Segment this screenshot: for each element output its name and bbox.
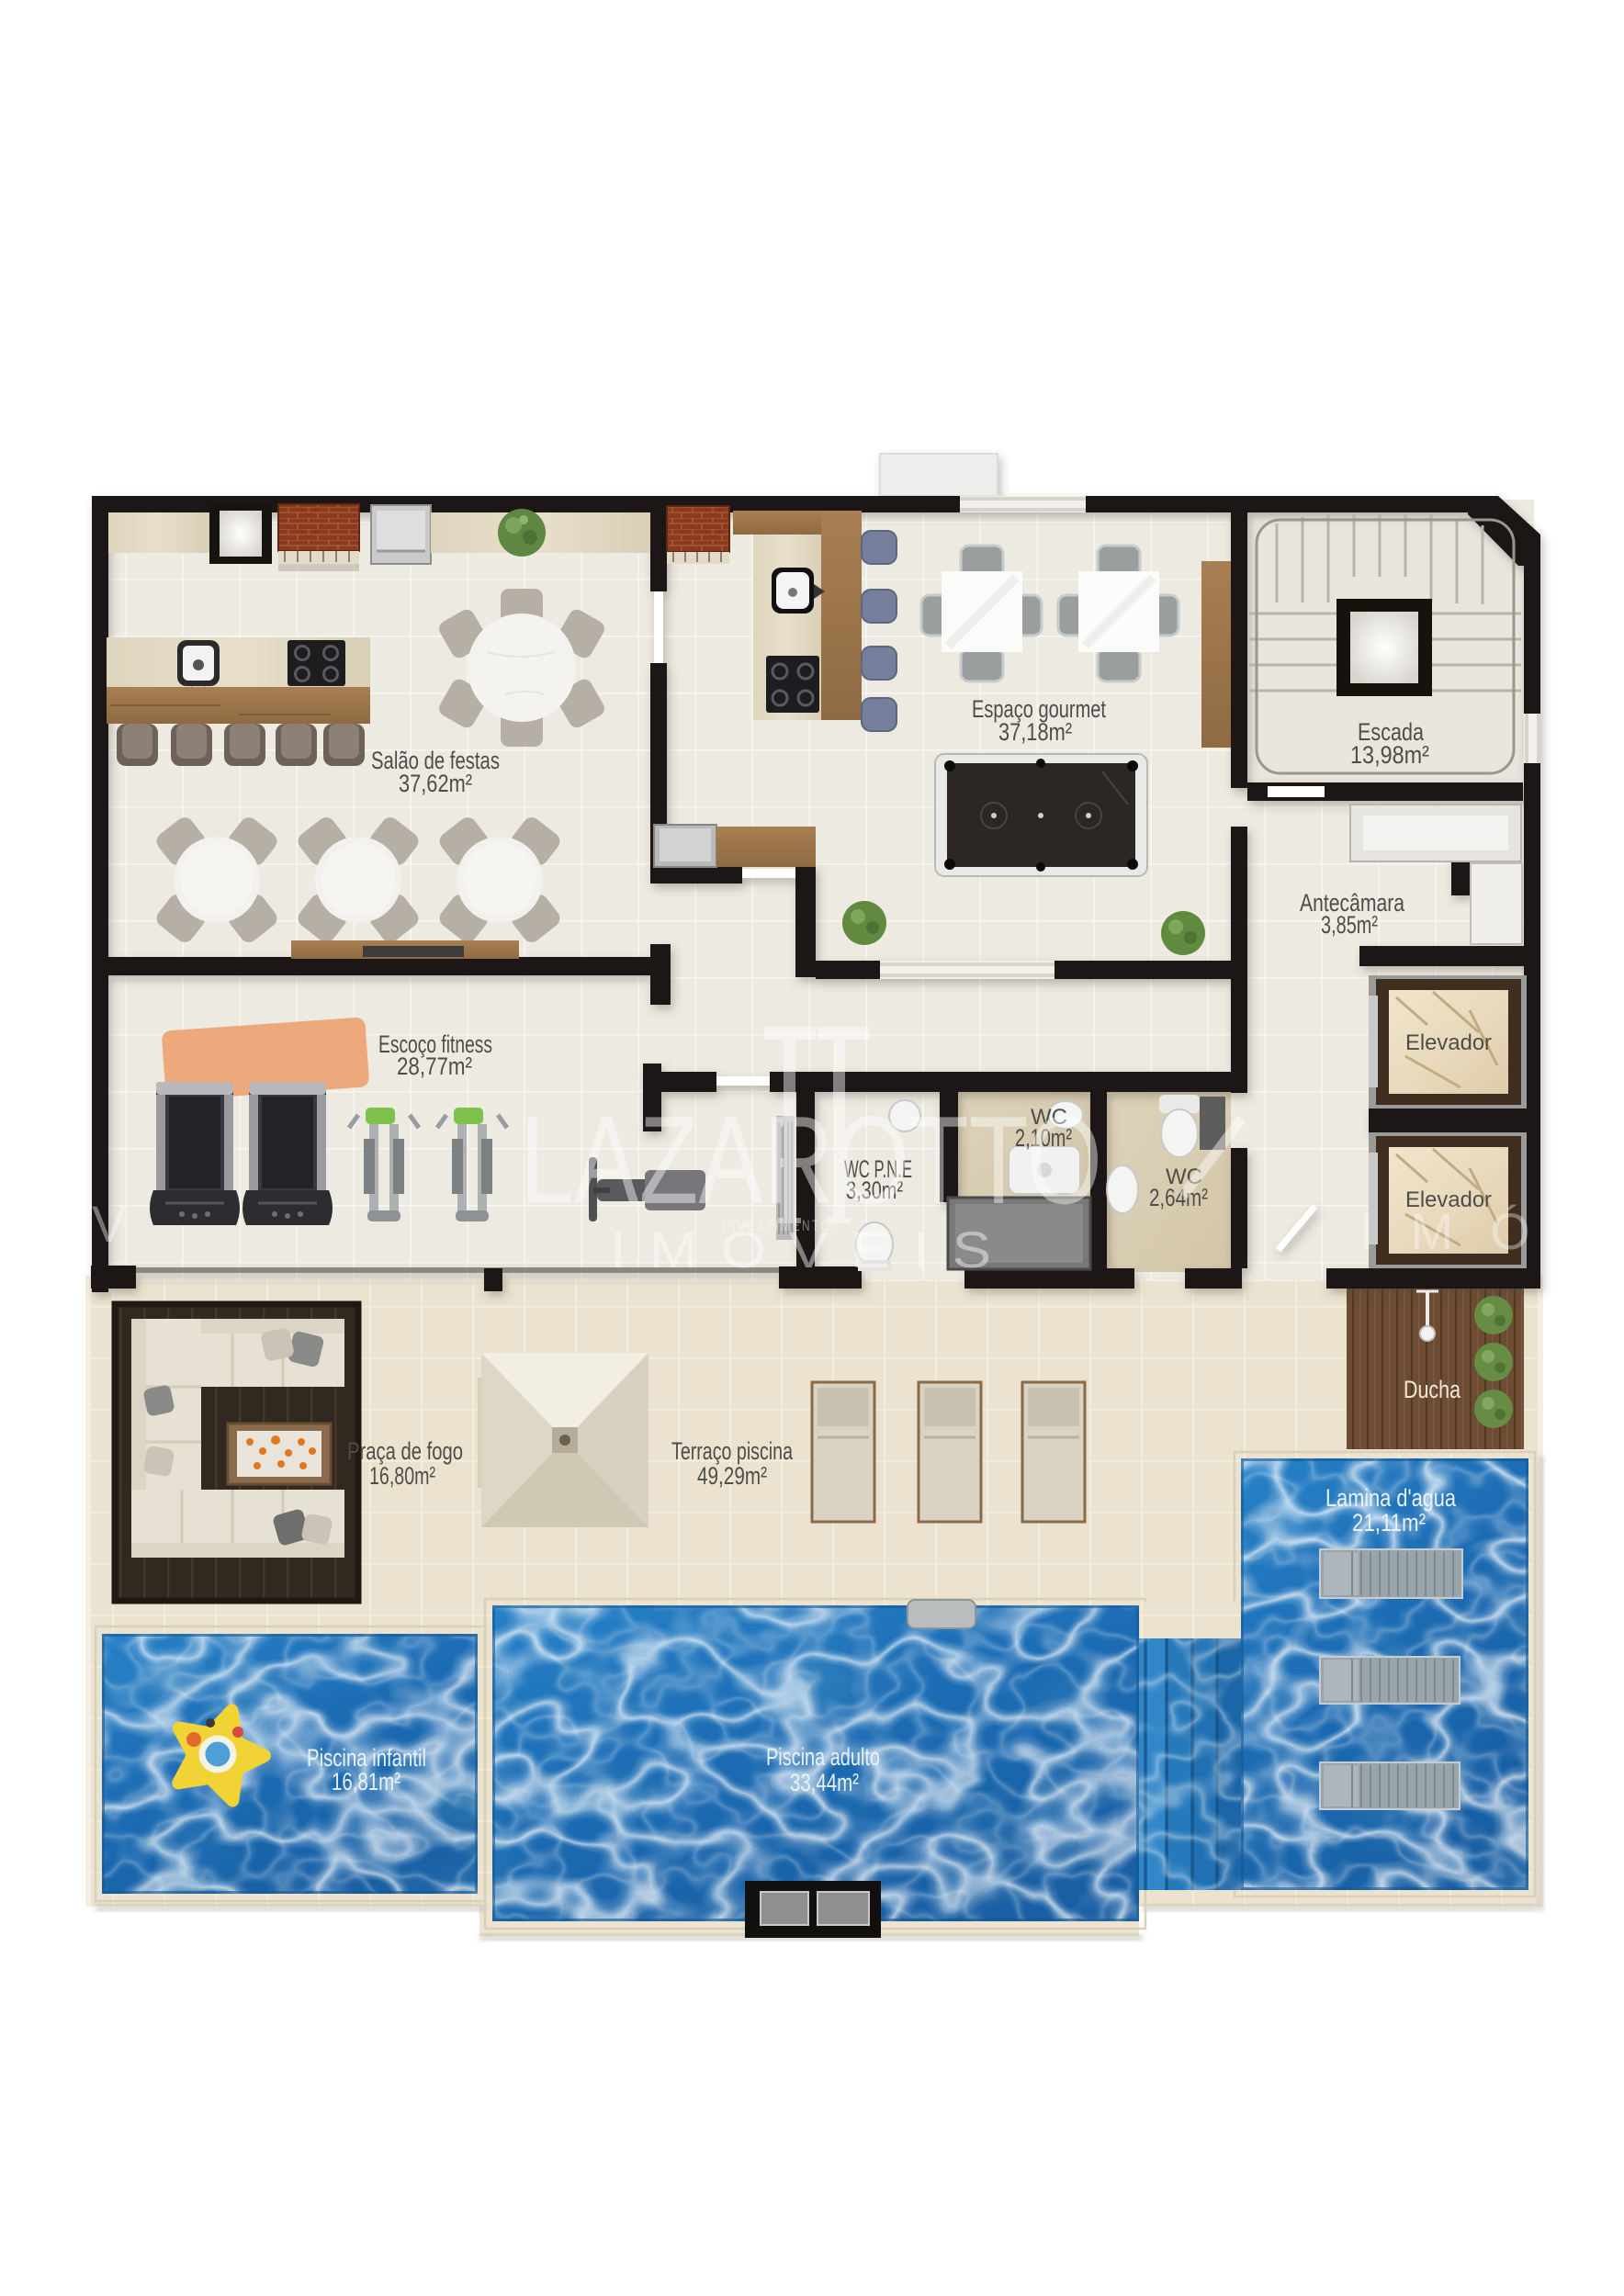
svg-text:16,80m²: 16,80m² <box>369 1462 435 1490</box>
svg-text:V: V <box>92 1195 163 1253</box>
svg-text:Praça de fogo: Praça de fogo <box>347 1437 463 1465</box>
svg-text:37,62m²: 37,62m² <box>399 770 472 797</box>
svg-text:Ducha: Ducha <box>1404 1376 1461 1403</box>
svg-text:3,85m²: 3,85m² <box>1321 911 1378 939</box>
svg-text:Lamina d'agua: Lamina d'agua <box>1325 1484 1457 1512</box>
svg-text:IMÓVEIS: IMÓVEIS <box>610 1221 1014 1278</box>
svg-text:Piscina adulto: Piscina adulto <box>766 1743 880 1771</box>
svg-text:28,77m²: 28,77m² <box>397 1052 472 1080</box>
svg-text:33,44m²: 33,44m² <box>790 1769 859 1796</box>
svg-text:16,81m²: 16,81m² <box>332 1768 400 1795</box>
svg-text:21,11m²: 21,11m² <box>1352 1509 1426 1536</box>
svg-text:37,18m²: 37,18m² <box>998 718 1072 746</box>
svg-text:LAZAROTTO: LAZAROTTO <box>520 1090 1102 1230</box>
svg-text:Elevador: Elevador <box>1405 1030 1492 1055</box>
svg-text:IMÓ: IMÓ <box>1359 1202 1567 1260</box>
svg-text:2,64m²: 2,64m² <box>1149 1184 1208 1211</box>
svg-text:Terraço piscina: Terraço piscina <box>671 1437 794 1465</box>
svg-text:49,29m²: 49,29m² <box>697 1462 767 1490</box>
svg-text:13,98m²: 13,98m² <box>1350 741 1429 769</box>
